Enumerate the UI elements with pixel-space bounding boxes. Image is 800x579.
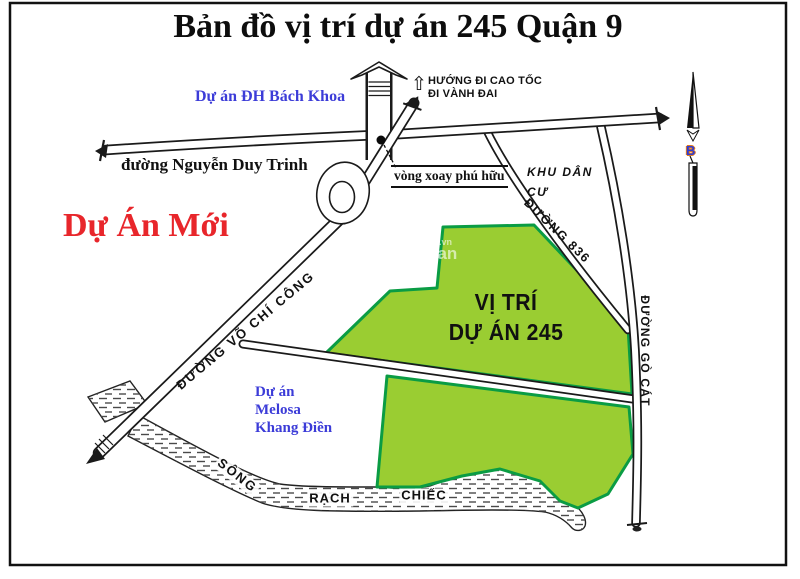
label-bach-khoa-project: Dự án ĐH Bách Khoa bbox=[195, 88, 345, 106]
label-nguyen-duy-trinh: đường Nguyễn Duy Trinh bbox=[121, 155, 308, 175]
label-highway-direction: HƯỚNG ĐI CAO TỐC ĐI VÀNH ĐAI bbox=[428, 75, 542, 101]
compass-north-label: B bbox=[686, 144, 695, 159]
label-project-245-location: VỊ TRÍ DỰ ÁN 245 bbox=[449, 287, 564, 347]
label-go-cat-road: ĐƯỜNG GÒ CÁT bbox=[637, 295, 651, 406]
arrow-west-icon bbox=[95, 140, 108, 161]
map-canvas: Bản đồ vị trí dự án 245 Quận 9 Dự án ĐH … bbox=[0, 0, 800, 579]
arrow-east-icon bbox=[656, 107, 670, 130]
watermark-text-large: san bbox=[428, 244, 457, 264]
label-new-project: Dự Án Mới bbox=[63, 207, 229, 245]
label-river-rach: RẠCH bbox=[307, 492, 353, 507]
direction-up-arrow-icon: ⇧ bbox=[411, 74, 427, 96]
roundabout-loop bbox=[311, 157, 375, 228]
label-phu-huu-roundabout: vòng xoay phú hữu bbox=[391, 165, 508, 188]
highway-overpass bbox=[351, 62, 407, 160]
label-residential-area: KHU DÂN CƯ bbox=[527, 162, 593, 202]
label-river-chiec: CHIẾC bbox=[399, 489, 448, 504]
go-cat-road-end-cap bbox=[627, 523, 647, 532]
label-melosa-project: Dự án Melosa Khang Điền bbox=[255, 383, 332, 437]
map-title: Bản đồ vị trí dự án 245 Quận 9 bbox=[10, 8, 786, 46]
